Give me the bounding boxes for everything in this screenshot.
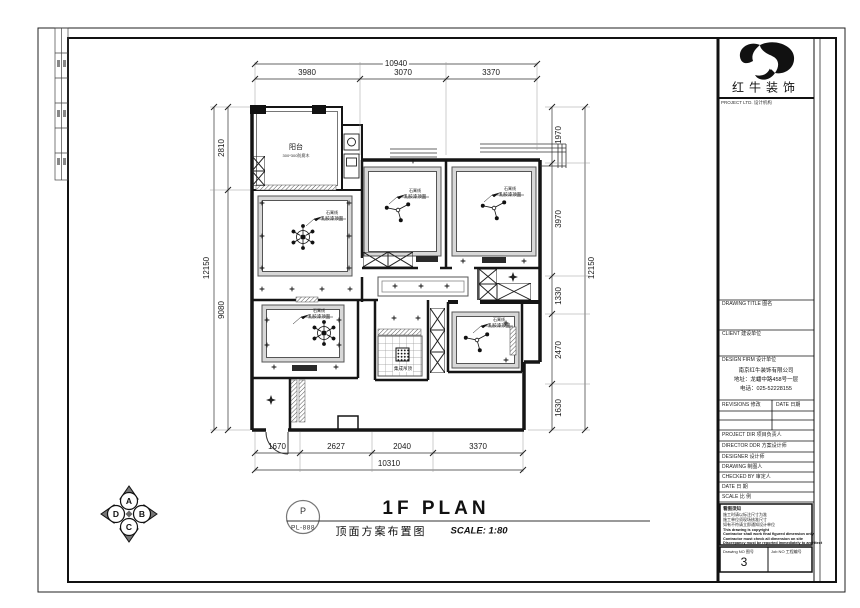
dim-right-total: 12150	[588, 257, 596, 279]
pendant-light-icon	[481, 201, 506, 220]
ceiling-note-bedroom2: 石膏线 乳胶漆顶面	[499, 187, 522, 197]
dim-bottom-seg-4: 3370	[469, 443, 487, 451]
ceiling-note-master: 石膏线 乳胶漆顶面	[308, 309, 331, 319]
dim-right-seg-1: 1970	[555, 126, 563, 144]
sheet-scale: SCALE: 1:80	[450, 526, 507, 537]
tb-job-no-label: Job NO 工程编号	[771, 550, 802, 554]
ceiling-note-living: 石膏线 乳胶漆顶面	[321, 211, 344, 221]
dim-right-seg-5: 1630	[555, 399, 563, 417]
tb-date-col-label: DATE 日期	[776, 403, 800, 408]
bedroom1-tray	[364, 167, 441, 256]
brand-logo-text: 红牛装饰	[732, 79, 800, 96]
dim-top-seg-2: 3070	[394, 69, 412, 77]
dim-bottom-seg-2: 2627	[327, 443, 345, 451]
brand-logo-sub: PROJECT LTD. 设计机构	[721, 100, 772, 106]
curtain-box	[510, 327, 516, 355]
vent-light-icon	[396, 348, 409, 361]
tb-note-0: 看图须知	[723, 507, 741, 512]
stamp-code: PL-888	[291, 525, 315, 532]
dim-left-seg-1: 2810	[218, 139, 226, 157]
compass-letter-west: D	[113, 509, 119, 519]
ceiling-note-bedroom1: 石膏线 乳胶漆顶面	[404, 189, 427, 199]
dim-right-seg-3: 1330	[555, 287, 563, 305]
tb-row-scale: SCALE 比 例	[722, 495, 751, 500]
chandelier-icon	[291, 225, 314, 250]
balcony-sublabel: 300*300防腐木	[283, 153, 310, 159]
bedroom2-tray	[452, 167, 536, 256]
dim-right-seg-4: 2470	[555, 341, 563, 359]
tb-row-designer: DESIGNER 设计师	[722, 455, 765, 460]
tb-firm-phone: 电话：025-52228155	[740, 385, 792, 394]
tb-row-project-dir: PROJECT DIR 项目负责人	[722, 433, 782, 438]
dim-right-seg-2: 3970	[555, 210, 563, 228]
ceiling-lamp-icon	[266, 395, 276, 405]
tb-note-3: 如有不符请立即通知设计单位	[723, 523, 775, 527]
brand-logo-icon	[740, 42, 794, 79]
sheet-title-cn: 顶面方案布置图	[336, 523, 427, 539]
tb-drawing-no: 3	[741, 555, 748, 569]
dim-bottom-seg-3: 2040	[393, 443, 411, 451]
tb-row-checked: CHECKED BY 审定人	[722, 475, 771, 480]
tb-row-director: DIRECTOR DDR 方案设计师	[722, 444, 787, 449]
hallway-trough	[378, 277, 468, 296]
pendant-light-icon	[385, 203, 410, 222]
tb-client-label: CLIENT 建设单位	[722, 332, 761, 337]
dim-top-total: 10940	[383, 60, 409, 68]
master-bedroom-tray	[262, 305, 344, 362]
dim-left-total: 12150	[203, 257, 211, 279]
vent	[416, 256, 438, 262]
drawing-sheet: 10940 3980 3070 3370 1670 2627 2040 3370…	[0, 0, 860, 608]
compass-icon	[101, 486, 157, 542]
kitchen-fixtures	[344, 134, 359, 178]
tb-note-7: Discrepancy must be reported immediately…	[723, 542, 822, 546]
dim-left-seg-2: 9080	[218, 301, 226, 319]
compass-letter-north: A	[126, 496, 132, 506]
tb-revisions-label: REVISIONS 修改	[722, 403, 761, 408]
binding-strip	[55, 28, 68, 180]
tb-row-date: DATE 日 期	[722, 485, 748, 490]
dim-bottom-seg-1: 1670	[268, 443, 286, 451]
bathroom-ceiling-label: 集成吊顶	[393, 366, 413, 372]
vent	[482, 257, 506, 263]
tb-design-firm-label: DESIGN FIRM 设计单位	[722, 358, 776, 363]
tb-firm-address: 地址：龙蟠中路458号一层	[734, 376, 798, 385]
pendant-light-icon	[464, 333, 489, 352]
dim-top-seg-1: 3980	[298, 69, 316, 77]
compass-letter-east: B	[139, 509, 145, 519]
sheet-title-en: 1F PLAN	[382, 498, 489, 520]
tb-drawing-no-label: Drawing NO 图号	[723, 550, 754, 554]
chandelier-icon	[312, 321, 335, 346]
dim-bottom-total: 10310	[376, 460, 402, 468]
stamp-letter: P	[300, 506, 306, 516]
vent	[292, 365, 317, 371]
compass-letter-south: C	[126, 522, 132, 532]
ceiling-lamp-icon	[508, 272, 518, 282]
tb-firm-name: 南京红牛装饰有限公司	[738, 367, 793, 376]
tb-drawing-title-label: DRAWING TITLE 图名	[722, 302, 772, 307]
ceiling-note-bedroom3: 石膏线 乳胶漆顶面	[488, 318, 511, 328]
tb-row-drawing: DRAWING 制图人	[722, 465, 762, 470]
balcony-label: 阳台	[289, 142, 303, 152]
sink-icon	[344, 134, 359, 150]
dim-top-seg-3: 3370	[482, 69, 500, 77]
title-block-grid	[718, 38, 820, 582]
